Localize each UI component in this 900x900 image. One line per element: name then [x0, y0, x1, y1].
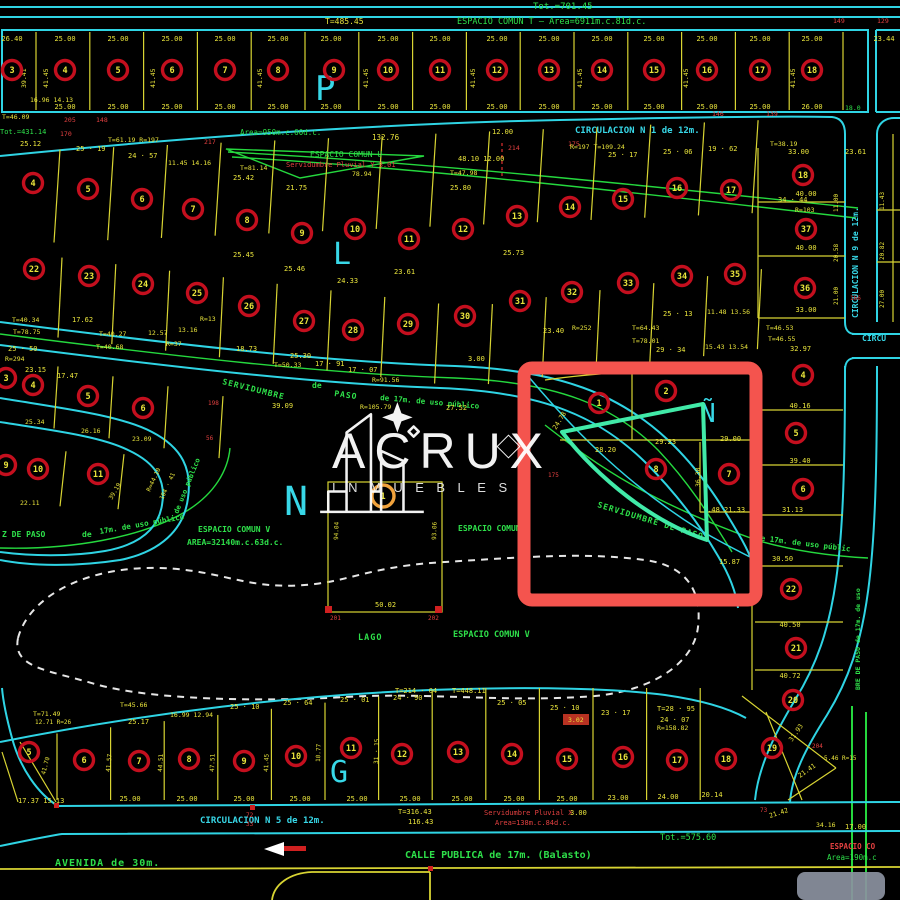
map-label: 25.00: [161, 103, 182, 111]
map-label: 24 · 90: [393, 694, 423, 702]
map-label: 3.02: [568, 716, 584, 724]
map-label: de: [82, 530, 92, 539]
map-label: 28.20: [595, 446, 616, 454]
lot-number-text: 16: [702, 66, 712, 76]
map-label: CIRCULACION N 1 de 12m.: [575, 126, 700, 136]
map-label: T=38.19: [770, 140, 797, 148]
lot-number-text: 25: [192, 289, 202, 299]
map-label: 33.00: [795, 306, 816, 314]
map-label: T=485.45: [325, 17, 364, 26]
map-label: 40.00: [795, 244, 816, 252]
map-label: 29 · 34: [656, 346, 686, 354]
map-label: 25.12: [20, 140, 41, 148]
lot-number-text: 6: [81, 756, 86, 766]
map-label: 23.15: [25, 366, 46, 374]
map-label: 25.00: [643, 103, 664, 111]
map-label: 32.97: [790, 345, 811, 353]
map-label: 11.45 14.16: [168, 159, 211, 167]
map-label: 24 · 57: [128, 152, 158, 160]
map-label: 25.17: [128, 718, 149, 726]
map-label: 22.11: [20, 499, 40, 507]
map-label: 20.58: [833, 244, 840, 262]
lot-number-text: 34: [677, 272, 687, 282]
lot-number-text: 8: [244, 216, 249, 226]
lot-number-text: 3: [9, 66, 14, 76]
map-label: CALLE PUBLICA de 17m. (Balasto): [405, 850, 592, 861]
map-label: 40.50: [779, 621, 800, 629]
lot-number-text: 18: [798, 171, 808, 181]
map-label: Z DE PASO: [2, 530, 46, 539]
map-label: R=252: [572, 324, 592, 332]
map-label: T=78.75: [13, 328, 40, 336]
map-label: 29.23: [655, 438, 676, 446]
lot-number-text: 13: [512, 212, 522, 222]
lot-number-text: 23: [84, 272, 94, 282]
map-label: 41.45: [789, 68, 797, 88]
map-label: 25.00: [377, 103, 398, 111]
lot-number-text: 7: [190, 205, 195, 215]
map-label: 25.00: [214, 35, 235, 43]
lot-number-text: 18: [721, 755, 731, 765]
lot-number-text: 7: [136, 757, 141, 767]
map-label: 25.80: [450, 184, 471, 192]
lot-number-text: 28: [348, 326, 358, 336]
lot-number-text: 31: [515, 297, 525, 307]
map-label: 25.00: [749, 35, 770, 43]
map-label: 25 · 13: [663, 310, 693, 318]
map-label: T=71.49: [33, 710, 60, 718]
map-label: 15.43 13.54: [705, 343, 748, 351]
map-label: Servidumbre Pluvial X: [484, 809, 573, 817]
map-label: Area=138m.c.84d.c.: [495, 819, 571, 827]
corner-overlay: [797, 872, 885, 900]
map-label: 17.62: [72, 316, 93, 324]
map-label: 25.00: [591, 103, 612, 111]
map-label: 204: [812, 743, 823, 750]
map-label: 25.42: [233, 174, 254, 182]
map-label: T=40.27: [99, 330, 126, 338]
map-label: Area=950m.c.60d.c.: [240, 128, 321, 137]
site-plan-screenshot: Tot.=701.45T=485.45ESPACIO COMUN T — Are…: [0, 0, 900, 900]
map-label: 25 · 01: [340, 696, 370, 704]
map-label: T=316.43: [398, 808, 432, 816]
map-label: 47.51: [209, 753, 217, 772]
lot-number-text: 33: [623, 279, 633, 289]
lot-number-text: 20: [788, 696, 798, 706]
map-label: 12.00: [492, 128, 513, 136]
map-label: 34.16: [816, 821, 836, 829]
map-label: 18.0: [845, 104, 861, 112]
map-label: R=294: [5, 355, 25, 363]
lot-number-text: 22: [29, 265, 39, 275]
map-label: 27.00: [879, 290, 886, 308]
map-label: 132.76: [372, 133, 400, 142]
map-label: 25 · 19: [76, 145, 106, 153]
map-label: 25.00: [107, 103, 128, 111]
map-label: 3.00: [570, 809, 587, 817]
map-label: 72: [246, 812, 254, 819]
lot-number-text: 11: [346, 744, 356, 754]
map-label: 25 · 05: [497, 699, 527, 707]
map-label: T=47.98: [450, 169, 477, 177]
map-label: 44.51: [157, 753, 165, 772]
lot-number-text: 16: [672, 184, 682, 194]
map-label: 33.00: [788, 148, 809, 156]
map-label: 25.00: [429, 103, 450, 111]
map-label: T=46.53: [766, 324, 793, 332]
lot-number-text: 4: [62, 66, 67, 76]
lot-number-text: 9: [3, 461, 8, 471]
map-label: 31 · 15: [373, 738, 381, 764]
map-label: 73: [760, 807, 768, 814]
map-label: T=46.55: [768, 335, 795, 343]
lot-number-text: 36: [800, 284, 810, 294]
map-label: 25.00: [696, 35, 717, 43]
map-label: 19 · 62: [708, 145, 738, 153]
map-label: 25.00: [503, 795, 524, 803]
map-label: 201: [330, 615, 341, 622]
map-label: ESPACIO COMUN V: [198, 525, 270, 534]
map-label: T=28 · 95: [657, 705, 695, 713]
map-label: 39.40: [789, 457, 810, 465]
map-label: 23.09: [132, 435, 152, 443]
map-label: 21.33: [724, 506, 745, 514]
map-label: 16.96 14.13: [30, 96, 73, 104]
map-label: 5.46 R=15: [824, 755, 857, 762]
map-label: Tot.=431.14: [0, 128, 46, 136]
map-label: ESPACIO COMUN V: [453, 630, 530, 640]
map-label: 170: [60, 130, 72, 138]
map-label: 175: [548, 472, 559, 479]
lot-number-text: 9: [331, 66, 336, 76]
lot-number-text: 5: [26, 748, 31, 758]
map-label: 23.44: [873, 35, 894, 43]
map-label: 40.72: [779, 672, 800, 680]
lot-number-text: 11: [435, 66, 445, 76]
map-label: CIRCULACION N 5 de 12m.: [200, 816, 325, 826]
map-label: T=81.14: [240, 164, 267, 172]
lot-number-text: 10: [291, 752, 301, 762]
lot-number-text: 24: [138, 280, 148, 290]
map-label: 25.00: [538, 35, 559, 43]
map-label: 25 · 17: [608, 151, 638, 159]
map-label: AVENIDA de 30m.: [55, 858, 160, 869]
map-label: ESPACIO COMUN U: [310, 150, 382, 159]
map-label: 23 · 17: [601, 709, 631, 717]
map-label: 20.14: [701, 791, 722, 799]
map-label: 25.00: [161, 35, 182, 43]
lot-number-text: 6: [800, 485, 805, 495]
lot-number-text: 29: [403, 320, 413, 330]
lot-number-text: 26: [244, 302, 254, 312]
lot-number-text: 14: [597, 66, 607, 76]
lot-number-text: 15: [618, 195, 628, 205]
block-letter-n: N: [284, 479, 308, 525]
north-arrow-tail: [284, 846, 306, 851]
map-label: 56: [206, 435, 214, 442]
map-label: 25.34: [25, 418, 45, 426]
map-label: 25.00: [176, 795, 197, 803]
map-label: 25.00: [486, 103, 507, 111]
lot-number-text: 30: [460, 312, 470, 322]
lot-number-text: 8: [653, 465, 658, 475]
lot-number-text: 12: [458, 225, 468, 235]
map-label: de: [312, 381, 322, 390]
map-label: 25.00: [289, 795, 310, 803]
map-label: 25.00: [451, 795, 472, 803]
lot-number-text: 37: [801, 225, 811, 235]
map-label: 129: [877, 17, 889, 25]
map-label: R=158.82: [657, 724, 688, 732]
map-label: 50.02: [375, 601, 396, 609]
map-label: 149: [833, 17, 845, 25]
map-label: 25.46: [284, 265, 305, 273]
lot-number-text: 9: [241, 757, 246, 767]
map-label: 25.00: [486, 35, 507, 43]
map-label: 26.16: [81, 427, 101, 435]
lot-number-text: 5: [793, 429, 798, 439]
map-label: T=45.66: [120, 701, 147, 709]
map-label: R=105.79: [360, 403, 391, 411]
lot-number-text: 17: [672, 756, 682, 766]
map-label: 36.38: [694, 467, 702, 487]
lot-number-text: 11: [404, 235, 414, 245]
map-label: R=103: [795, 206, 815, 214]
map-label: 41.45: [42, 68, 50, 88]
map-label: 31.13: [782, 506, 803, 514]
map-label: 25 · 10: [550, 704, 580, 712]
map-label: 25.00: [320, 35, 341, 43]
map-label: T=40.34: [12, 316, 39, 324]
lot-number-text: 19: [767, 744, 777, 754]
lot-number-text: 3: [3, 374, 8, 384]
site-plan-svg: Tot.=701.45T=485.45ESPACIO COMUN T — Are…: [0, 0, 900, 900]
map-label: 11.00: [833, 194, 840, 212]
map-label: 25.00: [556, 795, 577, 803]
map-label: 3.00: [468, 355, 485, 363]
map-label: R=197 T=109.24: [570, 143, 625, 151]
map-label: 10.77: [315, 743, 323, 762]
lot-number-text: 32: [567, 288, 577, 298]
map-label: 25.00: [267, 103, 288, 111]
map-label: 25.00: [54, 103, 75, 111]
map-label: T=448.11: [452, 687, 486, 695]
lot-number-text: 22: [786, 585, 796, 595]
map-label: 217: [204, 138, 216, 146]
map-label: 205: [64, 116, 76, 124]
lot-number-text: 7: [726, 470, 731, 480]
map-label: 25.00: [399, 795, 420, 803]
map-label: 27.52: [446, 404, 467, 412]
map-label: 78.94: [352, 170, 372, 178]
map-label: 11.48 13.56: [707, 308, 750, 316]
lot-number-text: 13: [453, 748, 463, 758]
lot-number-text: 15: [562, 755, 572, 765]
map-label: T=78.01: [632, 337, 659, 345]
map-label: 25.00: [119, 795, 140, 803]
lot-number-text: 4: [800, 371, 805, 381]
map-label: 17.47: [57, 372, 78, 380]
map-label: 198: [208, 400, 219, 407]
map-label: 23.61: [845, 148, 866, 156]
map-label: 23.61: [394, 268, 415, 276]
map-label: 25.45: [233, 251, 254, 259]
map-label: T=61.19 R=197: [108, 136, 159, 144]
map-label: 30.50: [772, 555, 793, 563]
map-label: 23.00: [607, 794, 628, 802]
map-label: 13.16: [178, 326, 198, 334]
map-label: 25.00: [214, 103, 235, 111]
map-label: T=50.33: [274, 361, 301, 369]
lot-number-text: 8: [186, 755, 191, 765]
map-label: 214: [508, 144, 520, 152]
map-label: 23.40: [543, 327, 564, 335]
map-label: 25.00: [801, 35, 822, 43]
map-label: 25.30: [290, 352, 311, 360]
map-label: 39.09: [272, 402, 293, 410]
lot-number-text: 35: [730, 270, 740, 280]
lot-number-text: 27: [299, 317, 309, 327]
lot-number-text: 10: [33, 465, 43, 475]
lot-number-text: 6: [139, 195, 144, 205]
lot-number-text: 10: [383, 66, 393, 76]
lot-number-text: 8: [275, 66, 280, 76]
map-label: T=40.68: [96, 343, 123, 351]
map-label: 146: [712, 110, 724, 118]
map-label: Area=190m.c: [827, 853, 877, 862]
lot-number-text: 4: [30, 179, 35, 189]
map-label: 41.45: [263, 753, 271, 772]
map-label: 139: [766, 110, 778, 118]
map-label: 148: [96, 116, 108, 124]
map-label: 25.00: [377, 35, 398, 43]
lot-number-text: 7: [222, 66, 227, 76]
lot-number-text: 6: [169, 66, 174, 76]
lot-number-text: 10: [350, 225, 360, 235]
map-label: 41.45: [576, 68, 584, 88]
map-label: CIRCU: [862, 334, 886, 343]
map-label: 116.43: [408, 818, 433, 826]
map-label: 25.00: [346, 795, 367, 803]
block-letter-l: L: [333, 237, 351, 272]
map-label: 17.37 15.13: [18, 797, 64, 805]
map-label: 41.45: [682, 68, 690, 88]
block-letter-g: G: [330, 755, 348, 790]
map-label: ESPACIO CO: [830, 842, 876, 851]
lot-number-text: 1: [596, 399, 601, 409]
map-label: R=91.56: [372, 376, 399, 384]
map-label: 33: [246, 821, 254, 828]
map-label: 24 · 07: [660, 716, 690, 724]
map-label: 41.45: [149, 68, 157, 88]
map-label: T=46.09: [2, 113, 29, 121]
map-label: 25.00: [54, 35, 75, 43]
map-label: 26.00: [801, 103, 822, 111]
map-label: 41.45: [469, 68, 477, 88]
map-label: 93.06: [431, 521, 439, 540]
map-label: 26.40: [1, 35, 22, 43]
map-label: 40.16: [789, 402, 810, 410]
map-label: 25.00: [538, 103, 559, 111]
lot-number-text: 21: [791, 644, 801, 654]
map-label: 11.43: [879, 192, 886, 210]
lot-number-text: 2: [663, 387, 668, 397]
map-label: 25 · 64: [283, 699, 313, 707]
map-label: 25.73: [503, 249, 524, 257]
map-label: R=37: [166, 340, 182, 348]
map-label: Tot.=575.60: [660, 833, 716, 843]
map-label: 21.75: [286, 184, 307, 192]
lot-number-text: 17: [755, 66, 765, 76]
map-label: 20.82: [879, 242, 886, 260]
lot-number-text: 12: [492, 66, 502, 76]
lot-number-text: 17: [726, 186, 736, 196]
map-label: 15.87: [719, 558, 740, 566]
map-label: 24.33: [337, 277, 358, 285]
map-label: R=13: [200, 315, 216, 323]
lot-number-text: 12: [397, 750, 407, 760]
map-label: 25 · 06: [663, 148, 693, 156]
map-label: 25.00: [591, 35, 612, 43]
lot-number-text: 4: [30, 381, 35, 391]
lot-number-text: 16: [618, 753, 628, 763]
map-label: AREA=32140m.c.63d.c.: [187, 538, 283, 547]
map-label: 25 · 50: [8, 345, 38, 353]
map-label: ESPACIO COMUN T — Area=6911m.c.81d.c.: [457, 17, 646, 27]
map-label: 25.00: [429, 35, 450, 43]
map-label: 12.71 R=26: [35, 719, 72, 726]
map-label: 17 · 07: [348, 366, 378, 374]
lot-number-text: 6: [140, 404, 145, 414]
map-label: 18.73: [236, 345, 257, 353]
map-label: 202: [428, 615, 439, 622]
map-label: BRE DE PASO de 17m. de uso: [854, 588, 862, 690]
map-label: Servidumbre Pluvial Y 3.01: [286, 161, 396, 169]
map-label: 41.45: [256, 68, 264, 88]
map-label: 94.04: [333, 521, 341, 540]
map-label: LAGO: [358, 633, 382, 643]
lot-number-text: 5: [85, 185, 90, 195]
map-label: 25 · 10: [230, 703, 260, 711]
map-label: 17.00: [845, 823, 866, 831]
map-label: 17 · 91: [315, 360, 345, 368]
lot-number-text: 11: [93, 470, 103, 480]
map-label: T=64.43: [632, 324, 659, 332]
map-label: 25.00: [233, 795, 254, 803]
map-label: 25.00: [107, 35, 128, 43]
lot-number-text: 13: [544, 66, 554, 76]
map-label: 21.00: [833, 287, 840, 305]
lot-number-text: 9: [299, 229, 304, 239]
lot-number-text: 1: [380, 492, 385, 502]
lot-number-text: 14: [507, 750, 517, 760]
map-label: 29.00: [720, 435, 741, 443]
plan-background: [0, 0, 900, 900]
lot-number-text: 14: [565, 203, 575, 213]
map-label: Tot.=701.45: [533, 2, 593, 12]
lot-number-text: 15: [649, 66, 659, 76]
map-label: 25.00: [267, 35, 288, 43]
map-label: 25.00: [643, 35, 664, 43]
map-label: 41.45: [362, 68, 370, 88]
map-label: 24.00: [657, 793, 678, 801]
map-label: 40.00: [795, 190, 816, 198]
map-label: 166: [850, 295, 861, 302]
lot-number-text: 5: [85, 392, 90, 402]
map-label: 48.10 12.00: [458, 155, 504, 163]
lot-number-text: 5: [115, 66, 120, 76]
map-label: 12.57: [148, 329, 168, 337]
